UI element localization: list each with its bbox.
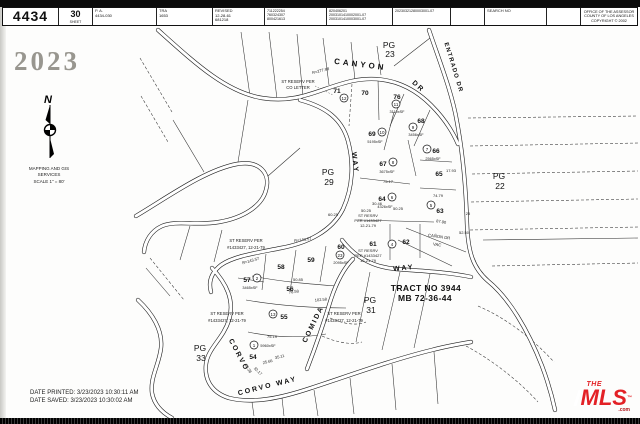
reserv-comida-2: #1433427, 12-21-79 [325,318,363,323]
dim-32-17: 32.17 [253,366,264,377]
lot-76-area: 3110xSF [390,110,406,114]
lot-60-area: 2095xSF [333,261,349,265]
lot-68-area: 3456xSF [408,133,424,137]
pg31-label: PG [364,295,376,305]
pg29-number: 29 [324,177,334,187]
lot-60: 60 [337,244,345,251]
pg33-number: 33 [196,353,206,363]
lot-69: 69 [368,131,376,138]
date-printed: DATE PRINTED: 3/23/2023 10:30:11 AM [30,389,139,397]
dim-75-19: 75.19 [267,334,278,339]
pg29-label: PG [322,167,334,177]
dim-87-90: 87.90 [436,218,447,225]
lot-62: 62 [402,239,410,246]
parcel-map: CANYON DR ENTRADO DR WAY WAY CORVO CORVO… [0,0,640,424]
lot-65: 65 [435,171,443,178]
lot-68: 68 [417,118,425,125]
reserv-61a-3: 12-21-79 [360,223,377,228]
tract-map-book: MB 72-36-44 [398,293,452,303]
pg22-number: 22 [495,181,505,191]
lot-66: 66 [432,148,440,155]
co-letter-note-1: ST RESERV PER [281,79,314,84]
dim-25-66: 25.66 [262,358,274,365]
dim-52-50: 52.50 [459,230,470,235]
street-reservation-annotations: ST RESERV PER CO LETTER ST RESERV PER #1… [208,79,382,323]
logo-trademark: ™ [627,395,632,401]
pg31-number: 31 [366,305,376,315]
dim-25: 25 [466,211,471,216]
lot-76-index: 11 [394,102,399,107]
lot-58: 58 [277,264,285,271]
lot-57: 57 [243,277,251,284]
logo-mls-letters: MLS [581,385,627,410]
lot-57-area: 3465xSF [242,286,258,290]
dim-60-25: 60.25 [328,212,339,217]
pg33-label: PG [194,343,206,353]
date-saved: DATE SAVED: 3/23/2023 10:30:02 AM [30,397,139,405]
lot-67: 67 [379,161,387,168]
lot-71: 71 [333,88,341,95]
dim-50-85: 50.85 [293,277,304,282]
reserv-bottom-2: #1433427, 12-21-79 [208,318,246,323]
lot-67-area: 3675xSF [379,170,395,174]
lot-63: 63 [436,208,444,215]
print-dates: DATE PRINTED: 3/23/2023 10:30:11 AM DATE… [30,389,139,405]
logo-mls-text: MLS™ [558,388,632,408]
reserv-bottom-1: ST RESERV PER [210,311,243,316]
street-label-canon-vac-2: VAC [433,241,442,247]
lot-66-area: 2565xSF [425,157,441,161]
assessor-map-page: 4434 30 SHEET P. A. 4434-030 TRA 1653 RE… [0,0,640,424]
lot-54: 54 [249,354,257,361]
the-mls-logo: THE MLS™ .com [558,382,632,412]
pg23-number: 23 [385,49,395,59]
dim-102-58: 102.58 [314,296,327,302]
lot-69-area: 5195xSF [367,140,383,144]
co-letter-note-2: CO LETTER [286,85,310,90]
reserv-mid-1: ST RESERV PER [229,238,262,243]
dim-30-46: 30.46 [372,201,383,206]
bottom-black-bar [0,418,640,424]
reserv-comida-1: ST RESERV PER [327,311,360,316]
pg22-label: PG [493,171,505,181]
lot-59: 59 [307,257,315,264]
lot-60-index: 23 [337,253,343,258]
reserv-61b-3: 12-21-79 [360,258,377,263]
lot-55: 55 [280,314,288,321]
lot-61: 61 [369,241,377,248]
lot-54-area: 5960xSF [260,344,276,348]
lot-70: 70 [361,90,369,97]
dim-35-11: 35.11 [274,353,285,360]
lot-69-index: 10 [379,130,385,135]
dim-50-25-a: 50.25 [361,208,372,213]
street-label-canon-vac: CAÑON DR [428,232,451,240]
lot-55-index: 13 [270,312,276,317]
tract-number: TRACT NO 3944 [391,283,461,293]
dim-50-25-b: 50.25 [393,206,404,211]
dim-78-58: 78.58 [288,288,299,294]
reserv-mid-2: #1433427, 12-21-79 [227,245,265,250]
lot-70-index: 12 [341,96,347,101]
dim-17-93: 17.93 [446,168,457,173]
dim-75-17: 75.17 [383,179,394,184]
dim-74-79: 74.79 [433,193,444,198]
